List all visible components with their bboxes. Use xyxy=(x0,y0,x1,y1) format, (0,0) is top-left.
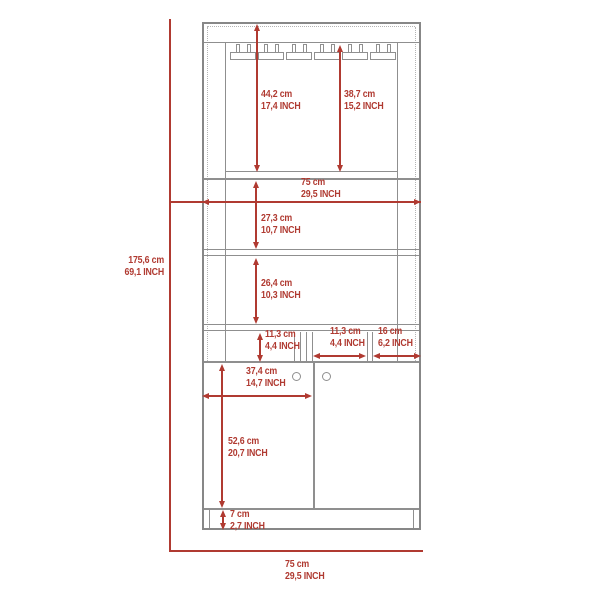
dimension-label-cubby-height: 11,3 cm 4,4 INCH xyxy=(265,329,300,353)
dimension-value-cm: 7 cm xyxy=(230,509,265,521)
dimension-arrow xyxy=(254,165,260,172)
dimension-label-upper-shelf: 27,3 cm 10,7 INCH xyxy=(261,213,301,237)
dimension-value-inch: 15,2 INCH xyxy=(344,101,384,113)
dotted-inner-line-left xyxy=(207,27,208,363)
base-foot-line-left xyxy=(209,510,210,528)
dimension-value-cm: 27,3 cm xyxy=(261,213,301,225)
dimension-label-rack-clearance: 38,7 cm 15,2 INCH xyxy=(344,89,384,113)
dimension-value-inch: 10,7 INCH xyxy=(261,225,301,237)
door-knob-left xyxy=(292,372,301,381)
dimension-line-door-height xyxy=(221,370,223,502)
dimension-label-inner-width: 75 cm 29,5 INCH xyxy=(301,177,341,201)
dimension-value-cm: 38,7 cm xyxy=(344,89,384,101)
glass-rack-bar xyxy=(230,52,256,60)
dimension-arrow xyxy=(257,355,263,362)
shelf-line xyxy=(204,324,419,325)
dimension-value-cm: 52,6 cm xyxy=(228,436,268,448)
dimension-line-top-section xyxy=(256,30,258,166)
dimension-arrow xyxy=(359,353,366,359)
dimension-arrow xyxy=(414,353,421,359)
dimension-arrow xyxy=(337,165,343,172)
dimension-value-inch: 6,2 INCH xyxy=(378,338,413,350)
dimension-label-cubby-width: 11,3 cm 4,4 INCH xyxy=(330,326,365,350)
side-panel-line-right xyxy=(397,43,398,363)
dimension-value-cm: 75 cm xyxy=(285,559,325,571)
door-knob-right xyxy=(322,372,331,381)
dimension-value-inch: 69,1 INCH xyxy=(111,267,164,279)
dimension-arrow xyxy=(202,199,209,205)
glass-rack-bar xyxy=(342,52,368,60)
cubby-divider-line xyxy=(306,332,307,361)
dimension-value-inch: 10,3 INCH xyxy=(261,290,301,302)
dimension-value-inch: 29,5 INCH xyxy=(285,571,325,583)
dimension-value-inch: 2,7 INCH xyxy=(230,521,265,533)
dimension-arrow xyxy=(305,393,312,399)
dimension-value-inch: 17,4 INCH xyxy=(261,101,301,113)
shelf-line xyxy=(226,171,397,172)
dimension-label-door-width: 37,4 cm 14,7 INCH xyxy=(246,366,286,390)
dimension-arrow xyxy=(253,242,259,249)
dimension-line-upper-shelf xyxy=(255,187,257,243)
dimension-label-lower-shelf: 26,4 cm 10,3 INCH xyxy=(261,278,301,302)
dimension-line-rack-clearance xyxy=(339,51,341,166)
dimension-value-cm: 11,3 cm xyxy=(265,329,300,341)
dimension-label-side-cubby-width: 16 cm 6,2 INCH xyxy=(378,326,413,350)
glass-rack-bar xyxy=(370,52,396,60)
dimension-value-cm: 37,4 cm xyxy=(246,366,286,378)
dotted-inner-line-top xyxy=(207,26,415,27)
dimension-value-inch: 20,7 INCH xyxy=(228,448,268,460)
dimension-value-inch: 29,5 INCH xyxy=(301,189,341,201)
dimension-value-cm: 44,2 cm xyxy=(261,89,301,101)
dimension-arrow xyxy=(219,501,225,508)
dimension-arrow xyxy=(414,199,421,205)
counter-line xyxy=(204,361,419,363)
dimension-line-cubby-height xyxy=(259,339,261,356)
dimension-value-cm: 26,4 cm xyxy=(261,278,301,290)
cubby-divider-line xyxy=(367,332,368,361)
dimension-value-cm: 175,6 cm xyxy=(111,255,164,267)
glass-rack-bar xyxy=(286,52,312,60)
door-gap-line xyxy=(313,363,315,508)
dotted-inner-line-right xyxy=(415,27,416,363)
dimension-label-base-height: 7 cm 2,7 INCH xyxy=(230,509,265,533)
dimension-value-inch: 14,7 INCH xyxy=(246,378,286,390)
dimension-line-overall-width xyxy=(169,550,423,552)
top-panel-line xyxy=(204,42,419,43)
furniture-dimension-diagram: 175,6 cm 69,1 INCH 44,2 cm 17,4 INCH 38,… xyxy=(0,0,600,600)
dimension-value-cm: 11,3 cm xyxy=(330,326,365,338)
dimension-value-inch: 4,4 INCH xyxy=(265,341,300,353)
dimension-label-top-section: 44,2 cm 17,4 INCH xyxy=(261,89,301,113)
dimension-arrow xyxy=(253,317,259,324)
dimension-line-side-cubby-width xyxy=(379,355,415,357)
shelf-line xyxy=(204,255,419,256)
glass-rack-bar xyxy=(314,52,340,60)
dimension-value-inch: 4,4 INCH xyxy=(330,338,365,350)
base-foot-line-right xyxy=(413,510,414,528)
dimension-line-overall-height xyxy=(169,19,171,552)
dimension-value-cm: 16 cm xyxy=(378,326,413,338)
dimension-label-overall-width: 75 cm 29,5 INCH xyxy=(285,559,325,583)
dimension-value-cm: 75 cm xyxy=(301,177,341,189)
dimension-line-cubby-width xyxy=(319,355,360,357)
shelf-line xyxy=(204,249,419,250)
cubby-divider-line xyxy=(300,332,301,361)
glass-rack-bar xyxy=(258,52,284,60)
dimension-label-door-height: 52,6 cm 20,7 INCH xyxy=(228,436,268,460)
dimension-label-overall-height: 175,6 cm 69,1 INCH xyxy=(111,255,164,279)
side-panel-line-left xyxy=(225,43,226,363)
dimension-line-lower-shelf xyxy=(255,264,257,318)
dimension-arrow xyxy=(220,523,226,530)
